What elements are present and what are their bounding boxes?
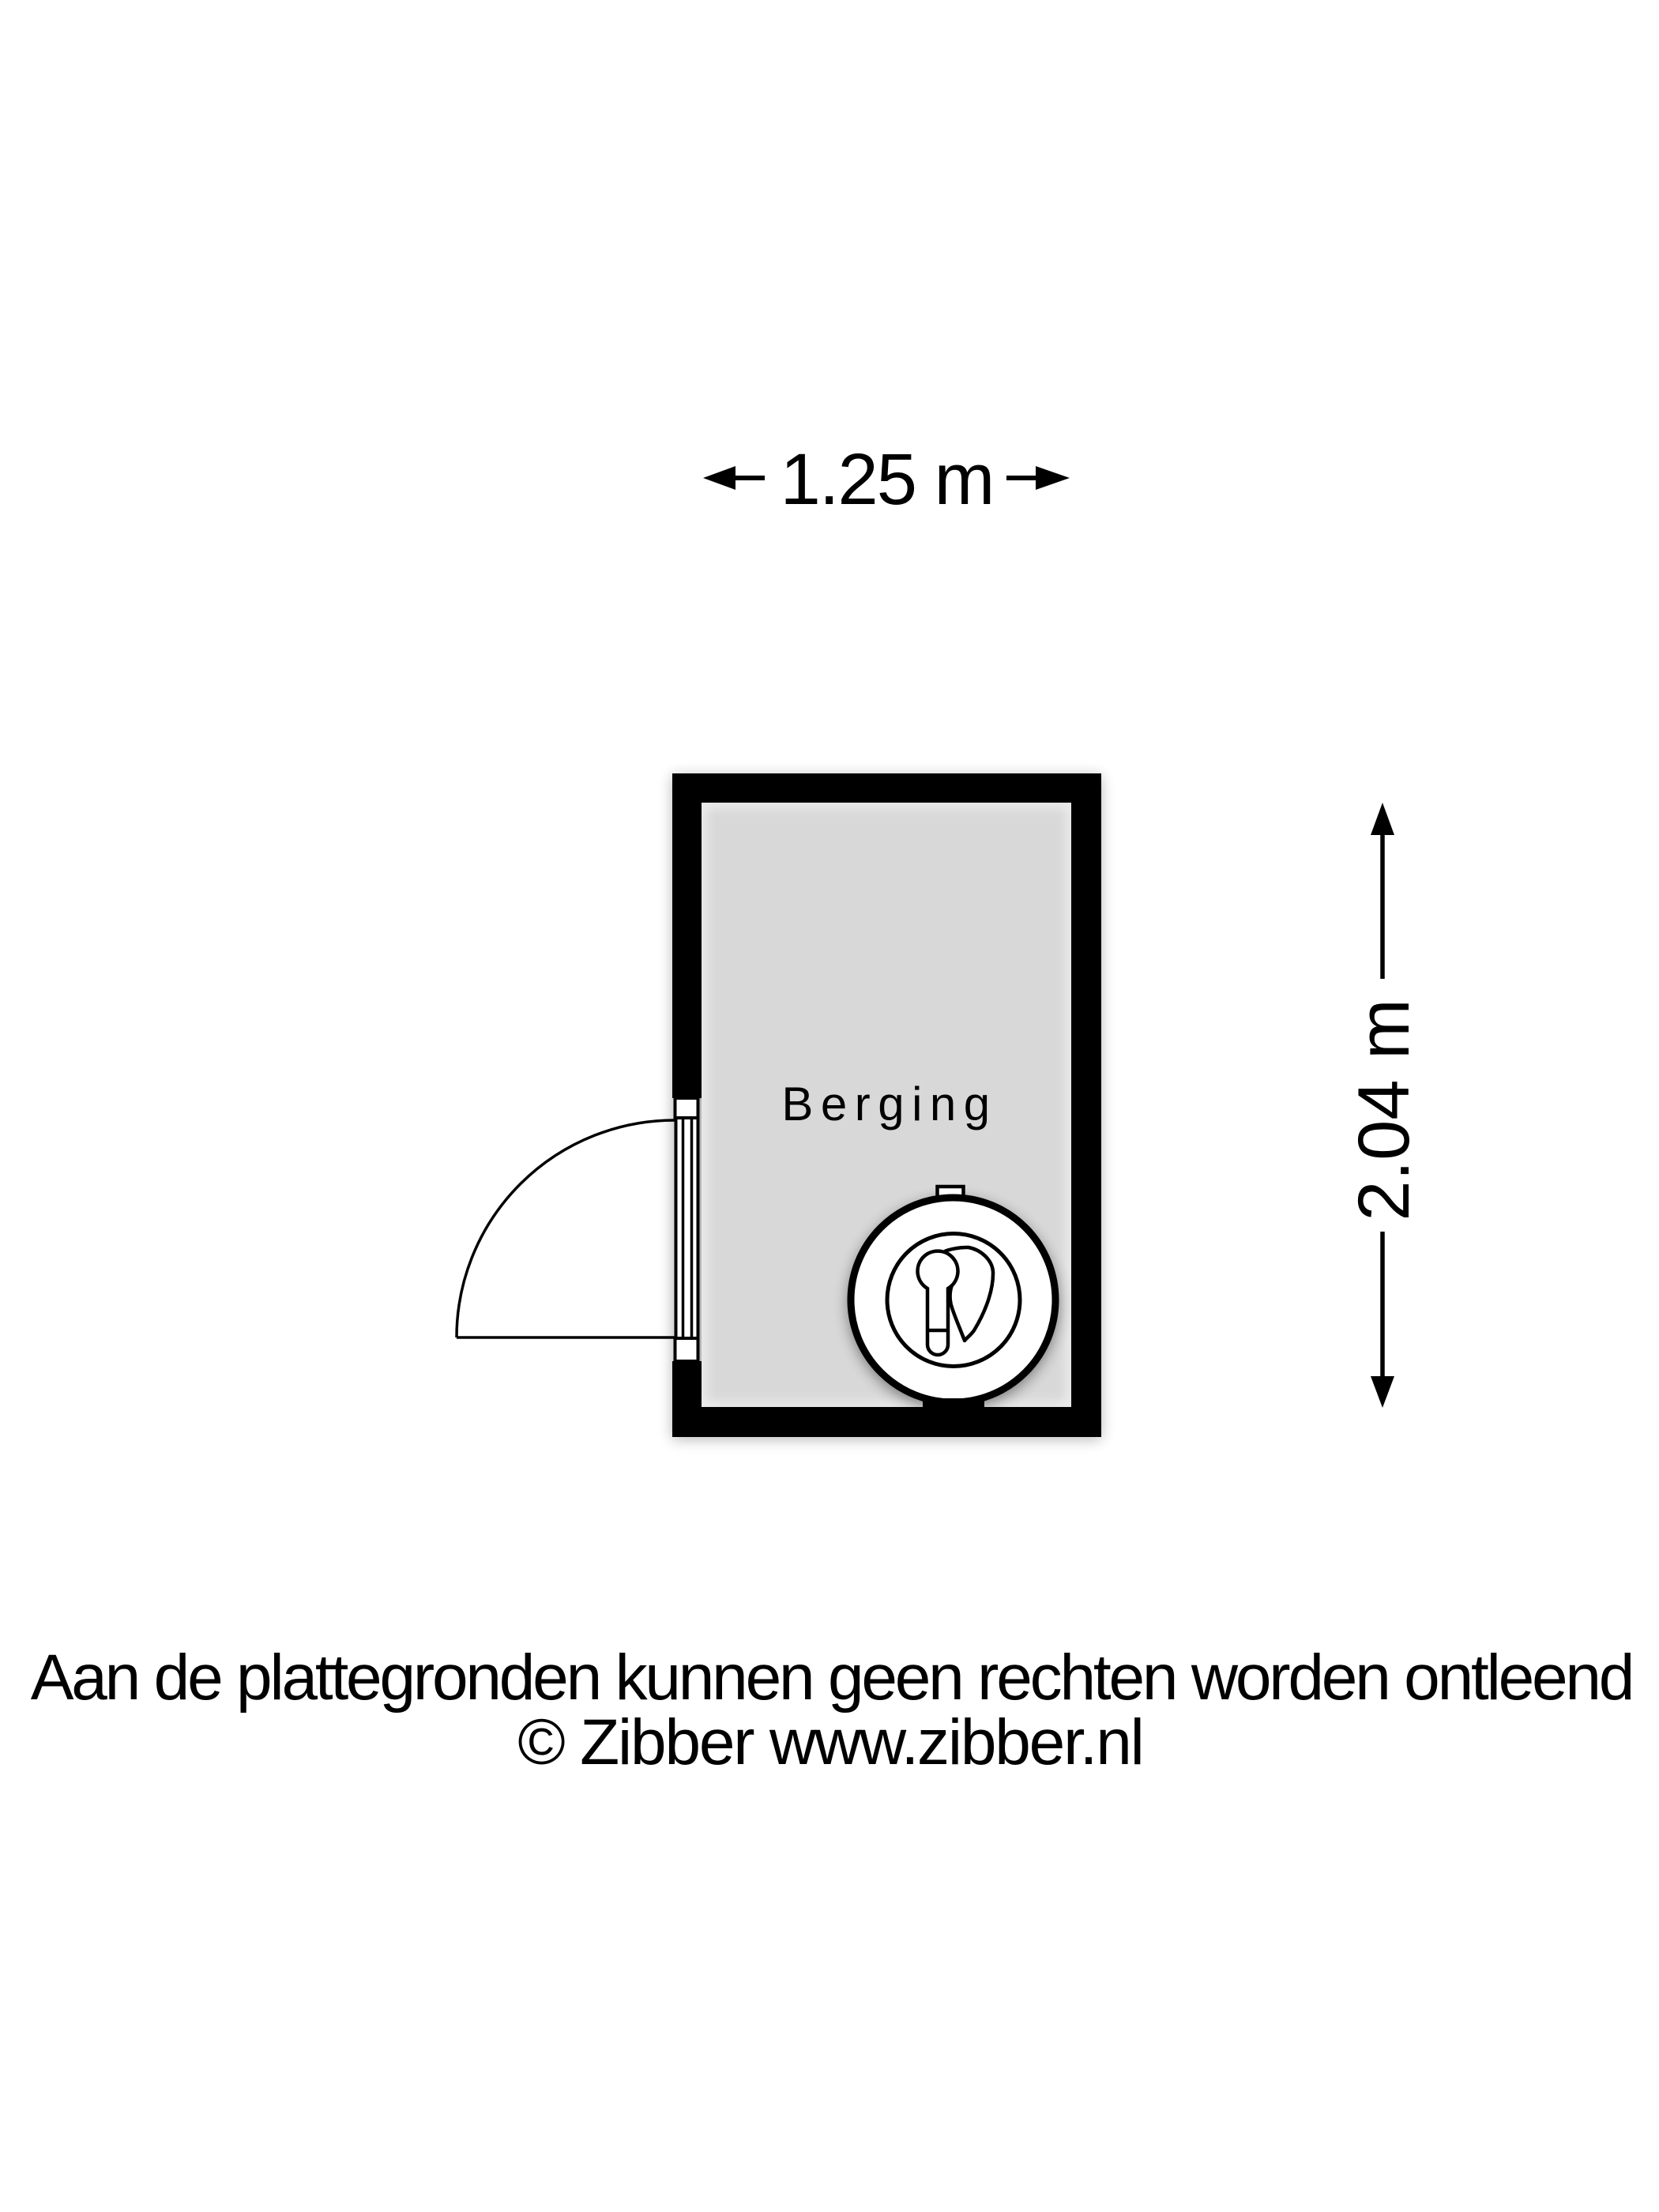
svg-text:1.25 m: 1.25 m xyxy=(781,439,994,520)
svg-text:Berging: Berging xyxy=(781,1078,997,1130)
svg-text:2.04 m: 2.04 m xyxy=(1344,999,1424,1221)
svg-text:Aan de plattegronden kunnen ge: Aan de plattegronden kunnen geen rechten… xyxy=(31,1642,1632,1714)
svg-text:© Zibber www.zibber.nl: © Zibber www.zibber.nl xyxy=(517,1706,1142,1778)
